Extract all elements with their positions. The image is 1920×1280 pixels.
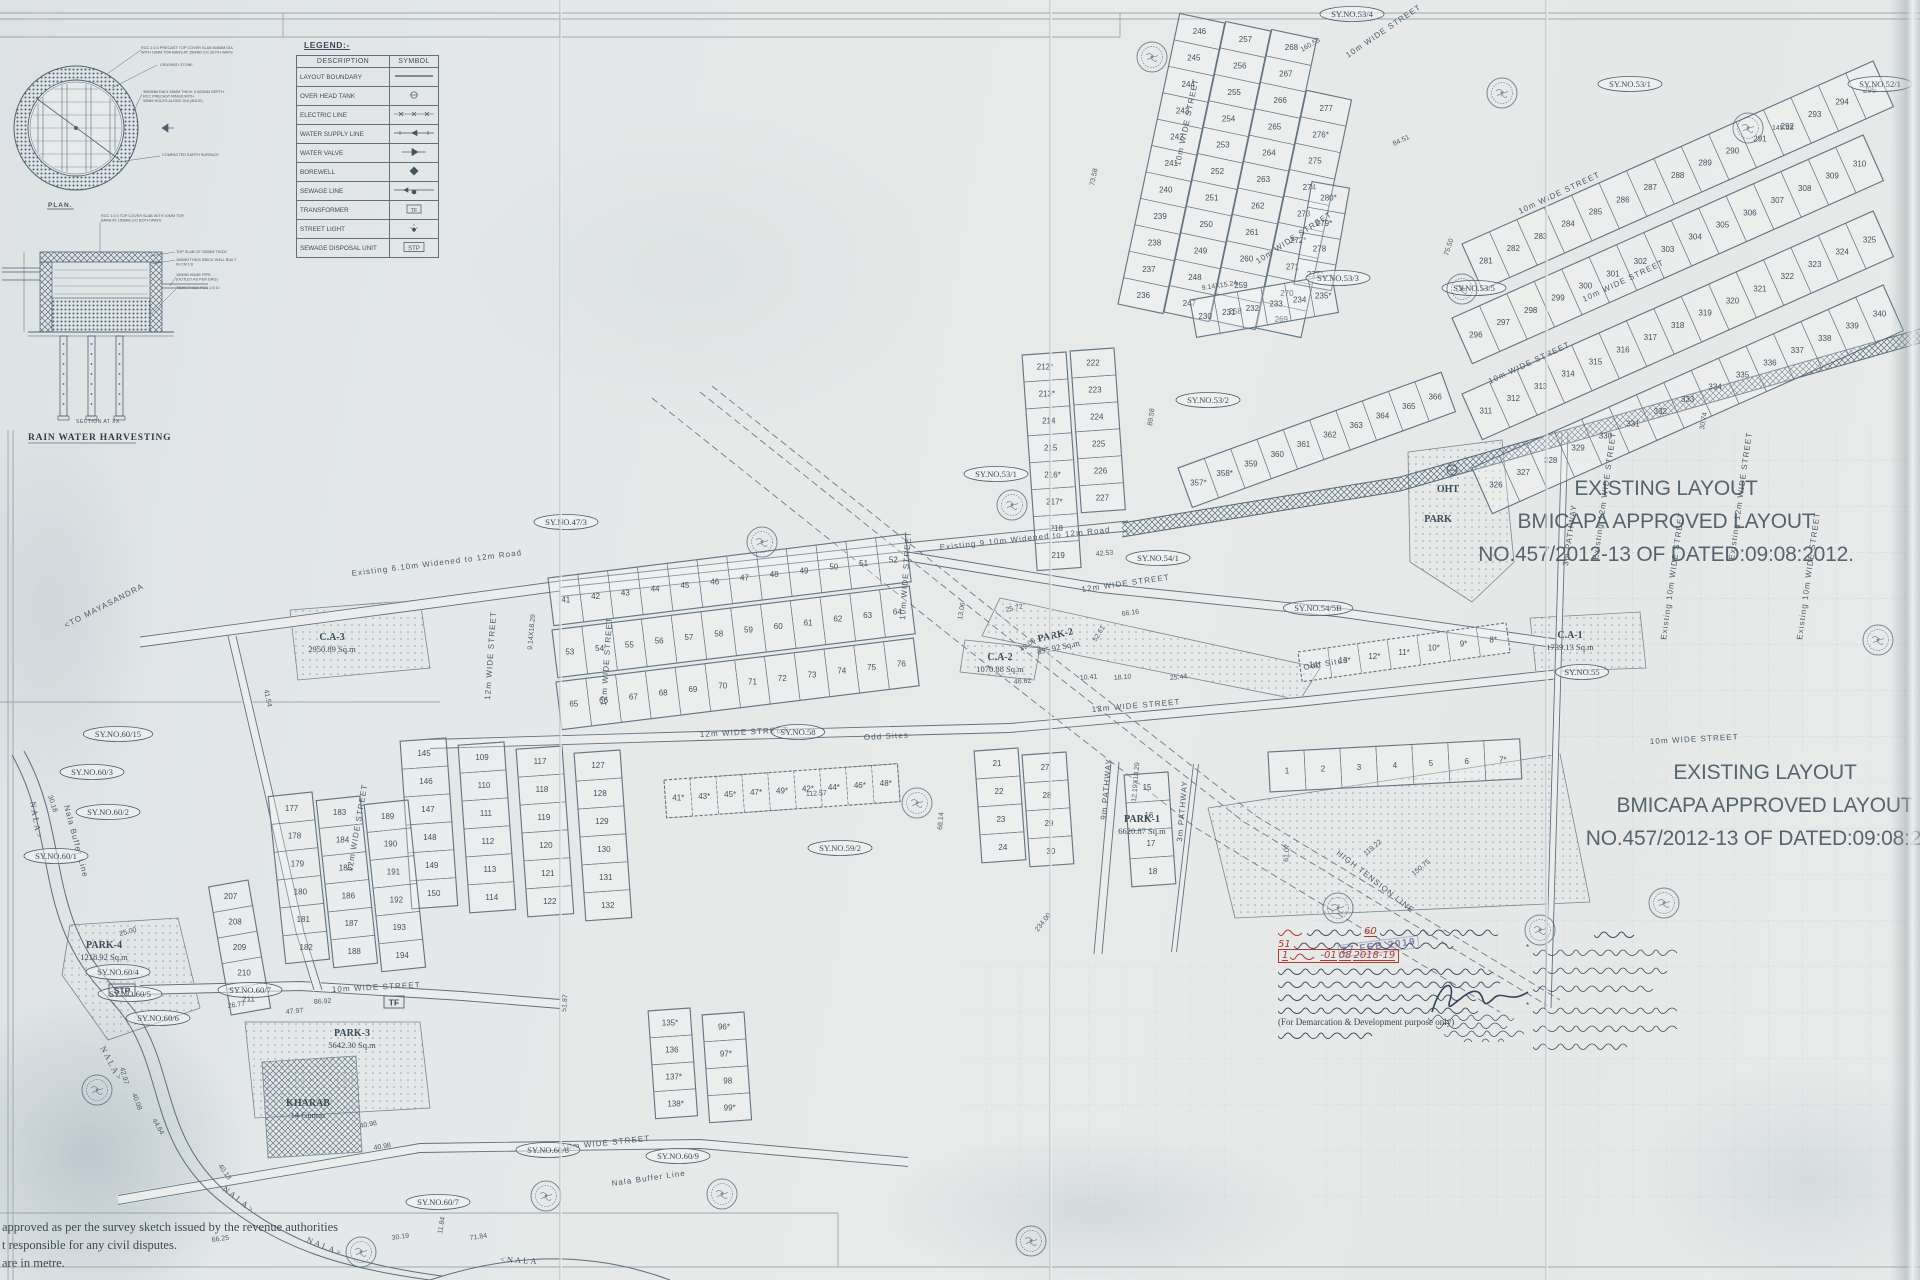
legend-title: LEGEND:- [304,40,439,50]
plot-number: 329 [1571,444,1585,453]
squiggle-path [1278,1033,1372,1039]
plot-number: 3 [1357,763,1362,772]
legend-row-symbol [390,68,439,87]
survey-number: SY.NO.53/1 [975,469,1017,479]
rwh-wall [150,262,162,332]
seal-center [1337,907,1340,910]
plot-number: 325 [1863,236,1877,245]
rwh-pipe-hole [119,343,121,345]
plot-number: 281 [1479,256,1493,265]
survey-number: SY.NO.59/2 [819,843,861,853]
detail-note: 3000MM DIA X 50MM THICK X 600MM DEPTH [143,90,224,94]
plot-number: 150 [427,889,441,898]
street-label: Odd Sites [864,731,909,742]
seal-center [1030,1240,1033,1243]
plot-number: 120 [539,841,553,850]
plot-number: 99* [724,1103,736,1112]
squiggle-path [1380,930,1498,936]
seal-stamp-icon [82,1075,112,1105]
plot-number: 62 [833,615,842,624]
plot-number: 110 [478,781,491,790]
legend-row-label: OVER HEAD TANK [297,87,390,106]
measurement-label: 75.50 [1443,238,1455,257]
squiggle-path [1307,930,1361,936]
plot-number: 17 [1146,839,1155,848]
plot-number: 296 [1469,330,1483,339]
plot-number: 339 [1845,322,1859,331]
plot-number: 317 [1644,333,1658,342]
plot-number: 310 [1853,160,1867,169]
plot-number: 43* [698,792,710,801]
measurement-label: 68.14 [937,812,946,830]
plot-number: 22 [995,787,1004,796]
measurement-label: 51.87 [561,994,570,1012]
measurement-label: 10.41 [1080,673,1098,682]
plot-number: 7* [1499,755,1507,764]
plot-number: 98 [723,1076,732,1085]
legend-row-symbol [390,106,439,125]
plot-number: 333 [1681,395,1695,404]
area-size-label: 1739.13 Sq.m [1546,642,1594,652]
rwh-pipe-hole [119,353,121,355]
survey-number: SY.NO.60/7 [417,1197,460,1207]
legend-row-label: ELECTRIC LINE [297,106,390,125]
squiggle-path [1444,1031,1524,1037]
plot-number: 315 [1589,358,1603,367]
plot-number: 225 [1092,439,1106,448]
plot-number: 210 [237,969,251,978]
survey-number: SY.NO.60/4 [97,967,140,977]
plot-strip: 127128129130131132 [574,750,632,921]
plot-number: 177 [285,804,299,813]
plot-number: 248 [1188,273,1202,282]
legend-row-label: TRANSFORMER [297,201,390,220]
seal-center [1151,56,1154,59]
seal-center [1877,639,1880,642]
plot-number: 4 [1393,761,1398,770]
plot-number: 5 [1429,759,1434,768]
survey-number: SY.NO.60/3 [71,767,113,777]
plot-number: 320 [1726,297,1740,306]
handwriting-row: 60 [1278,924,1516,937]
rwh-pipe-hole [91,393,93,395]
plot-number: 366 [1428,392,1442,401]
plot-number: 252 [1211,167,1225,176]
seal-stamp-icon [902,788,932,818]
plot-number: 255 [1228,88,1242,97]
legend-header-row: DESCRIPTIONSYMBOL [297,56,439,68]
plot-number: 109 [475,753,489,762]
detail-note: 150MM THICK BRICK WALL BUILT [176,258,237,262]
plot-number: 132 [601,901,615,910]
area-size-label: 6620.87 Sq.m [1118,826,1166,836]
survey-number: SY.NO.53/1 [1609,79,1651,89]
squiggle-line [1533,962,1683,980]
plot-number: 275 [1308,157,1322,166]
plot-number: 149 [425,861,439,870]
plot-number: 332 [1654,407,1668,416]
plot-number: 232 [1246,304,1260,313]
plot-number: 289 [1698,159,1712,168]
plot-number: 361 [1297,440,1311,449]
plot-number: 61 [804,618,813,627]
rwh-pipe-hole [63,363,65,365]
rwh-pipe-hole [91,403,93,405]
area-size-label: 2950.89 Sq.m [308,644,356,654]
plot-number: 56 [655,637,664,646]
measurement-label: 41.54 [262,689,273,708]
legend-row: BOREWELL [297,163,439,182]
rwh-pipe-hole [91,343,93,345]
plot-number: 336 [1763,358,1777,367]
measurement-label: 44.64 [150,1118,165,1137]
squiggle-path [1428,1015,1514,1021]
legend-borewell-symbol-icon [392,166,436,176]
plot-number: 209 [233,943,247,952]
rwh-pipe-hole [91,373,93,375]
plot-number: 359 [1244,459,1258,468]
seal-stamp-icon [346,1237,376,1267]
plot-strip: 117118119120121122 [516,746,574,917]
rwh-pipe-hole [91,353,93,355]
legend-row-symbol [390,220,439,239]
plot-number: 314 [1561,370,1575,379]
plot-number: 278 [1313,244,1327,253]
red-ink-value: 60 [1364,927,1377,937]
plot-number: 45 [680,581,689,590]
rwh-gravel [52,298,150,332]
detail-note: TOP SLAB OF 150MM THICK [176,250,227,254]
plot-number: 306 [1743,208,1757,217]
plot-number: 265 [1268,122,1282,131]
plot-number: 138* [667,1099,683,1108]
plot-number: 21 [993,759,1002,768]
plot-number: 214 [1042,416,1056,425]
plot-strip: 41*43*45*47*49*42*44*46*48* [664,764,900,818]
plot-number: 68 [659,689,668,698]
plot-number: 240 [1159,186,1173,195]
detail-note: RCC PRECAST RINGS WITH [143,95,194,99]
legend-electric-symbol-icon [392,109,436,119]
plot-number: 178 [288,832,302,841]
plot-number: 189 [381,812,395,821]
street-label: <TO MAYASANDRA [63,582,146,630]
nala-label: NALA> [221,1184,257,1216]
plot-number: 312 [1507,394,1521,403]
plot-number: 263 [1257,175,1271,184]
area-size-label: 1218.92 Sq.m [80,952,128,962]
plot-number: 146 [419,777,433,786]
handwriting-squiggle [1458,1039,1504,1042]
seal-center [1663,902,1666,905]
plot-number: 322 [1781,272,1795,281]
plot-number: 192 [390,895,404,904]
squiggle-path [1533,950,1677,956]
symbol-shape [412,149,418,156]
survey-number: SY.NO.54/5B [1294,603,1342,613]
symbol-shape [410,167,418,175]
plot-number: 27 [1041,763,1050,772]
plot-number: 331 [1626,419,1640,428]
plot-number: 360 [1271,450,1285,459]
plot-number: 319 [1698,309,1712,318]
legend-header: DESCRIPTION [297,56,390,68]
legend-sewage-symbol-icon [392,185,436,195]
plot-number: 55 [625,640,634,649]
legend-row-label: BOREWELL [297,163,390,182]
plot-number: 363 [1350,421,1364,430]
plot-number: 337 [1791,346,1805,355]
plot-number: 219 [1051,551,1065,560]
symbol-shape [412,131,417,136]
survey-number: SY.NO.60/7 [229,985,272,995]
legend-stp-symbol-icon: STP [392,242,436,252]
seal-stamp-icon [997,490,1027,520]
plot-number: 29 [1044,819,1053,828]
handwriting-squiggle [1278,927,1304,937]
rwh-pipe-hole [91,383,93,385]
rwh-pipe-hole [119,393,121,395]
measurement-label: 11.84 [437,1216,447,1234]
plot-number: 97* [720,1049,732,1058]
plot-number: 49* [776,786,788,795]
plot-number: 18 [1148,867,1157,876]
plot-number: 290 [1726,147,1740,156]
seal-center [1747,127,1750,130]
plot-number: 213* [1039,390,1055,399]
legend-row-symbol: TF [390,201,439,220]
legend-row: LAYOUT BOUNDARY [297,68,439,87]
handwriting-squiggle [1278,1030,1374,1040]
legend-row: ELECTRIC LINE [297,106,439,125]
plot-number: 28 [1043,791,1052,800]
plot-number: 182 [300,943,314,952]
plot-number: 58 [714,629,723,638]
handwriting-squiggle [1380,927,1498,937]
red-ink-value: 1 [1282,951,1288,961]
plot-number: 262 [1251,202,1265,211]
measurement-label: 9.14X18.29 [527,614,537,650]
squiggle-path [1436,1023,1507,1029]
plot-number: 238 [1148,238,1162,247]
seal-center [545,1195,548,1198]
plot-number: 23 [996,815,1005,824]
plot-number: 294 [1835,98,1849,107]
legend-row: SEWAGE LINE [297,182,439,201]
plot-number: 9* [1460,639,1468,648]
plot-number: 224 [1090,412,1104,421]
survey-number: SY.NO.53/2 [1187,395,1229,405]
plot-number: 136 [665,1045,679,1054]
plot-number: 117 [534,757,547,766]
legend-row: WATER SUPPLY LINE [297,125,439,144]
plot-number: 254 [1222,114,1236,123]
approval-title-block-1: EXISTING LAYOUT BMICAPA APPROVED LAYOUT … [1440,472,1892,571]
plot-number: 127 [591,761,605,770]
handwriting-squiggle [1533,1041,1631,1051]
plot-number: 303 [1661,245,1675,254]
squiggle-path [1533,1026,1677,1032]
detail-note: BARS AT 150MM C/C BOTH WAYS [101,219,162,223]
plot-number: 111 [480,809,493,818]
plot-number: 113 [483,865,496,874]
plot-number: 15 [1143,783,1152,792]
plot-number: 311 [1479,406,1492,415]
survey-number: SY.NO.47/3 [545,517,587,527]
measurement-label: 71.84 [469,1233,487,1242]
rwh-pipe-hole [63,343,65,345]
plot-number: 194 [396,951,410,960]
plot-number: 231 [1222,308,1236,317]
rwh-pipe-cap [58,416,69,420]
plot-number: 69 [688,685,697,694]
rwh-pipe-hole [119,373,121,375]
leader-line [112,65,157,88]
rwh-pipe-hole [63,373,65,375]
handwriting-squiggle [1307,927,1361,937]
leader-line [107,50,141,74]
plot-number: 148 [423,833,437,842]
plot-number: 184 [336,836,350,845]
plot-number: 193 [393,923,407,932]
symbol-text: STP [408,246,420,252]
plot-number: 147 [421,805,435,814]
plot-number: 305 [1716,221,1730,230]
plot-number: 216* [1044,470,1060,479]
plot-number: 131 [599,873,613,882]
signature [1428,972,1538,1042]
plot-number: 12* [1368,652,1380,661]
seal-stamp-icon [1137,42,1167,72]
plot-number: 188 [348,947,362,956]
seal-stamp-icon [1016,1226,1046,1256]
street-label: Existing 6.10m Widened to 12m Road [351,548,523,578]
detail-note: 50MM HOLES ALONG DIA (4NOS) [143,99,203,103]
plot-number: 260 [1240,254,1254,263]
plot-number: 2 [1321,765,1326,774]
measurement-label: 47.97 [286,1007,304,1016]
plot-number: 261 [1245,228,1259,237]
handwriting-squiggle [1533,1005,1683,1015]
plot-number: 121 [541,869,555,878]
plot-number: 43 [621,588,630,597]
plot-number: 334 [1708,383,1722,392]
plot-number: 323 [1808,260,1822,269]
plot-number: 145 [417,749,431,758]
plot-number: 50 [829,563,838,572]
legend-row-symbol: STP [390,239,439,258]
section-label: SECTION AT XX [76,419,120,425]
area-size-label: 14 Guntas [291,1110,326,1120]
plot-number: 191 [387,868,401,877]
seal-center [1461,288,1464,291]
plot-number: 338 [1818,334,1832,343]
seal-stamp-icon [531,1181,561,1211]
annotation-note-column: ** [1526,926,1706,1060]
detail-note: IN CM 1:6 [176,263,193,267]
legend-row: OVER HEAD TANK [297,87,439,106]
note-heading-squiggle [1526,926,1706,944]
legend-row-label: SEWAGE LINE [297,182,390,201]
seal-center [1011,504,1014,507]
title-line: EXISTING LAYOUT [1530,756,1920,789]
plot-strip: 135*136137*138* [648,1008,697,1119]
handwriting-squiggle [1428,1015,1514,1021]
squiggle-path [1290,954,1314,960]
plot-number: 318 [1671,321,1685,330]
detail-note: COMPACTED EARTH SURFACE [162,153,219,157]
scanned-blueprint-sheet: 2362372382392402412422432442452462472482… [0,0,1920,1280]
legend-row: WATER VALVE [297,144,439,163]
plot-number: 119 [538,813,551,822]
plot-number: 297 [1497,318,1511,327]
rwh-title: RAIN WATER HARVESTING [28,433,171,443]
nala-line [430,1259,670,1280]
title-line: NO.457/2012-13 OF DATED:09:08:2012. [1440,538,1892,571]
legend-row-symbol [390,182,439,201]
survey-number: SY.NO.53/4 [1331,9,1374,19]
nala-label: NALA> [28,801,45,841]
title-line: BMICAPA APPROVED LAYOUT [1440,505,1892,538]
plot-number: 128 [593,789,607,798]
plot-number: 268 [1285,43,1299,52]
plot-number: 285 [1589,208,1603,217]
measurement-label: 112.57 [806,790,827,798]
legend-row: SEWAGE DISPOSAL UNITSTP [297,239,439,258]
plot-number: 135* [662,1019,678,1028]
nala-label: <NALA [500,1254,539,1266]
plot-number: 48 [770,570,779,579]
plot-number: 57 [684,633,693,642]
legend-row: TRANSFORMERTF [297,201,439,220]
legend-panel: LEGEND:- DESCRIPTIONSYMBOLLAYOUT BOUNDAR… [296,40,439,258]
plot-number: 67 [629,692,638,701]
plot-number: 266 [1274,96,1288,105]
survey-number: SY.NO.53/3 [1317,273,1359,283]
plot-number: 253 [1216,141,1230,150]
survey-number: SY.NO.60/9 [657,1151,699,1161]
plot-number: 52 [889,555,898,564]
legend-valve-symbol-icon [392,147,436,157]
plot-number: 65 [569,700,578,709]
survey-number: SY.NO.60/15 [95,729,141,739]
plot-number: 251 [1205,194,1219,203]
handwriting-squiggle [1533,965,1673,975]
plot-strip: 21222324 [974,748,1026,863]
seal-stamp-icon [1487,78,1517,108]
plot-number: 30 [1046,847,1055,856]
measurement-label: 13.06 [957,602,967,621]
rwh-top-slab [40,252,162,262]
symbol-shape [412,190,416,194]
measurement-label: 84.51 [1392,134,1411,148]
plot-number: 245 [1187,53,1201,62]
plot-number: 71 [748,678,757,687]
squiggle-path [1458,1039,1504,1042]
legend-header: SYMBOL [390,56,439,68]
rwh-section-drawing: RCC 1:2:4 TOP COVER SLAB WITH 10MM TORBA… [2,214,237,443]
squiggle-path [1594,932,1634,938]
plot-number: 256 [1233,61,1247,70]
area-label: C.A-1 [1557,630,1582,641]
handwriting-squiggle [1533,983,1653,993]
plot-number: 246 [1193,27,1207,36]
plot-number: 217* [1046,497,1062,506]
note-bullet-item: * [1526,944,1706,998]
plot-strip: 222223224225226227 [1070,348,1125,513]
plot-number: 282 [1507,244,1521,253]
plot-number: 24 [998,843,1007,852]
